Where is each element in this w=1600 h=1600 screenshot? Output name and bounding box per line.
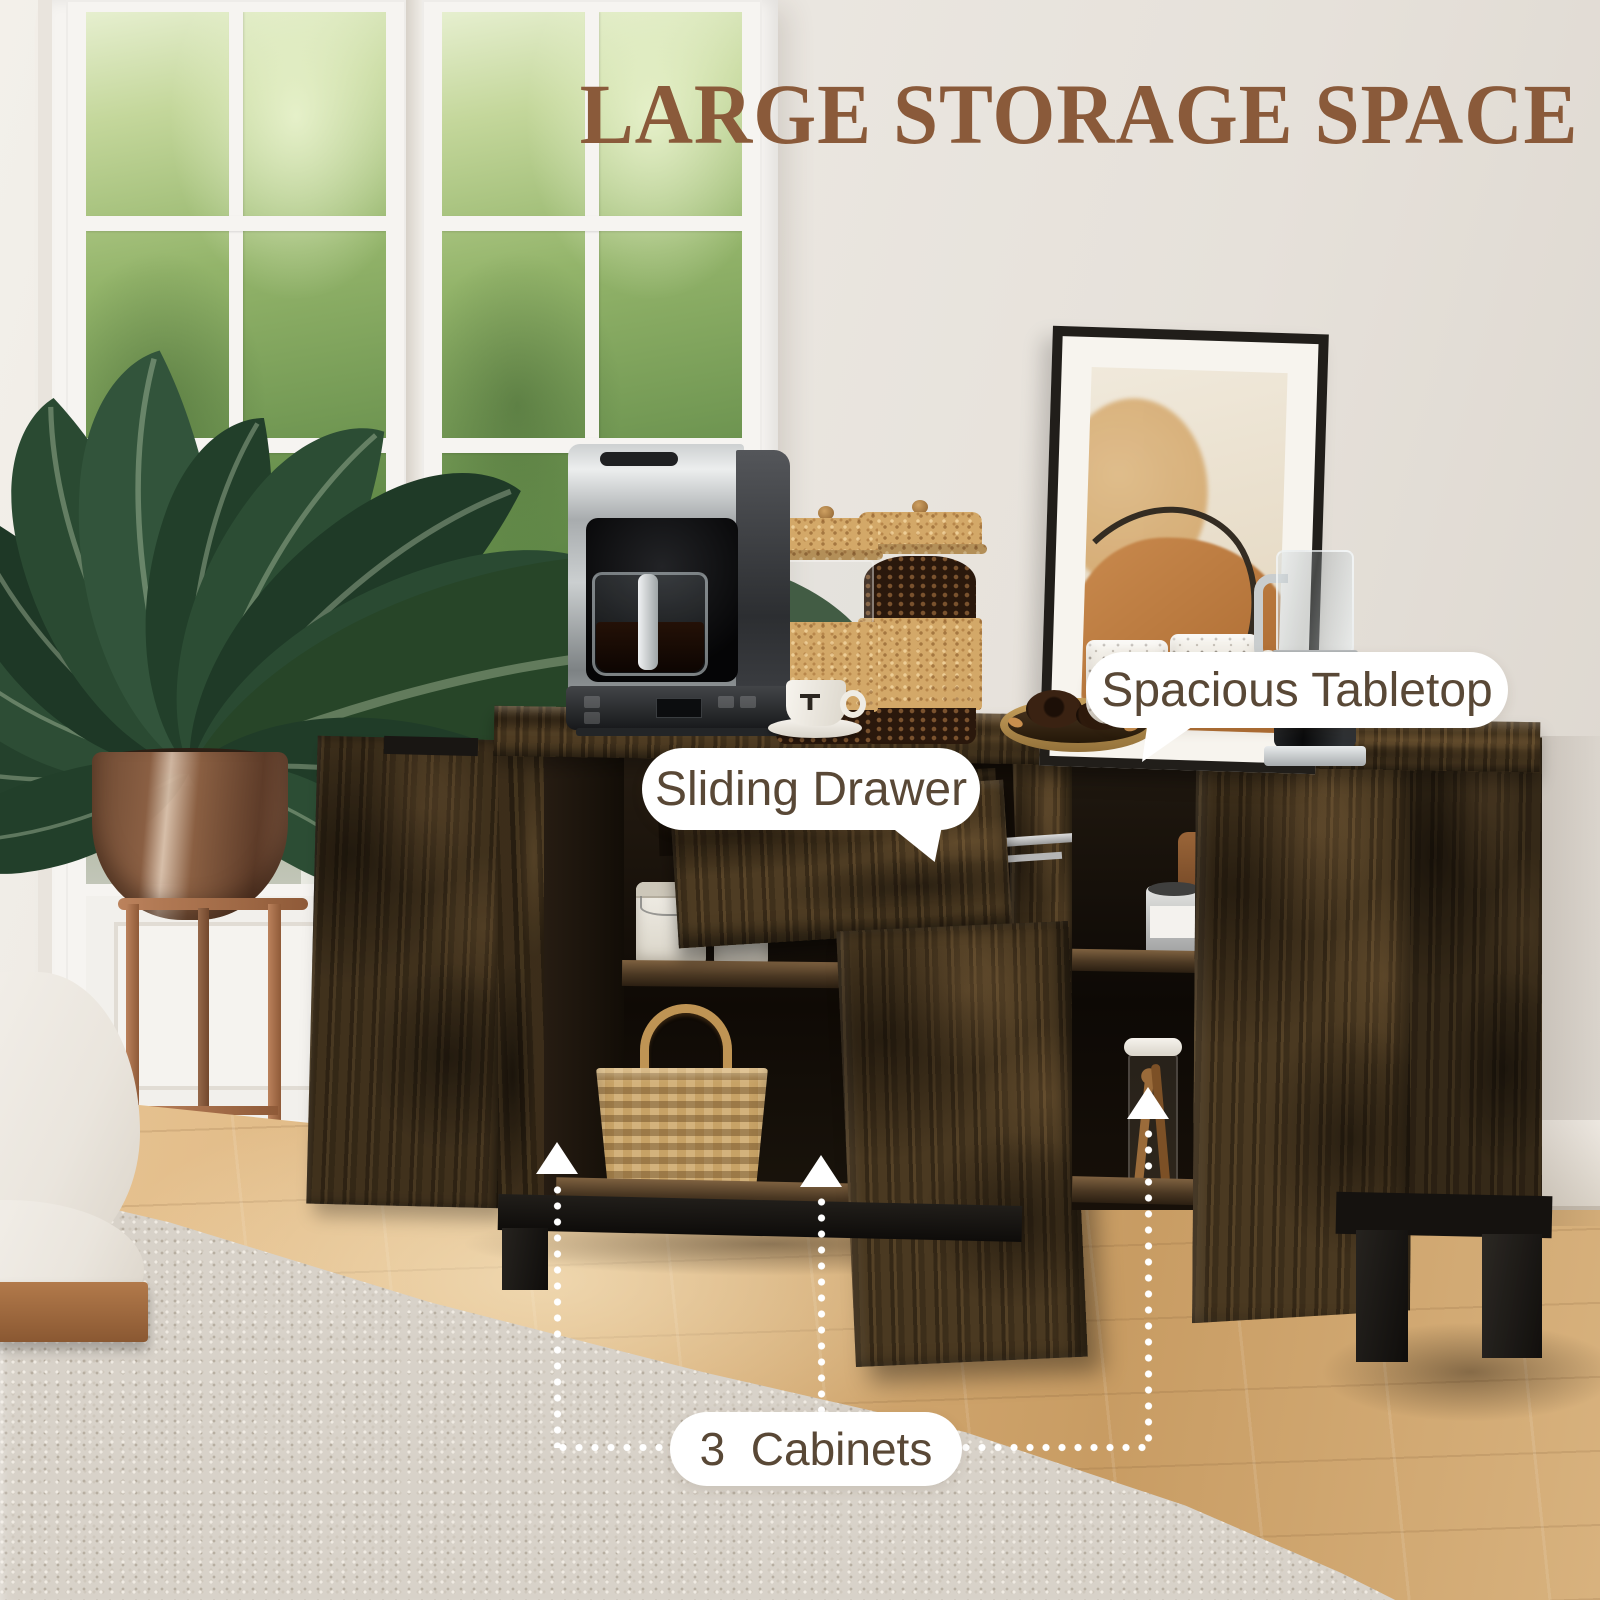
coffee-maker [566,440,794,732]
chocolate-donut [1026,690,1082,728]
coffee-maker-base [576,728,780,736]
control-button [584,696,600,708]
callout-label: 3 Cabinets [700,1422,933,1476]
dotted-connector [817,1194,826,1416]
cabinet-side-panel [1410,730,1542,1228]
dotted-connector [1144,1126,1153,1448]
up-arrow-icon [800,1155,842,1187]
carafe-handle [638,574,658,670]
coffee-beans [864,556,976,620]
frother-glass-top [1276,550,1354,654]
cup-handle [840,690,866,718]
candle-label [1150,906,1198,938]
wooden-utensil [1151,1064,1170,1182]
control-button [740,696,756,708]
door-bracket [384,736,478,756]
cabinet-left-door-open [306,736,511,1209]
coffee-maker-handle-slot [600,452,678,466]
frother-base [1264,746,1366,766]
utensil-jar [1128,1054,1178,1192]
sofa-wood-base [0,1282,148,1342]
callout-3-cabinets: 3 Cabinets [670,1412,962,1486]
up-arrow-icon [536,1142,578,1174]
clock-display [656,698,702,718]
cabinet-center-door-open [836,921,1088,1367]
callout-sliding-drawer: Sliding Drawer [642,748,980,830]
cabinet-leg [1356,1230,1408,1362]
candle-tin [1146,886,1202,958]
dotted-connector [958,1443,1150,1452]
control-button [584,712,600,724]
product-photo-scene: LARGE STORAGE SPACE Spacious Tabletop Sl… [0,0,1600,1600]
cabinet-leg [1482,1234,1542,1358]
cabinet-shelf [1072,949,1212,973]
control-button [718,696,734,708]
candle-opening [1148,882,1200,896]
coffee-maker-side-panel [736,450,790,688]
callout-label: Sliding Drawer [655,762,967,817]
callout-label: Spacious Tabletop [1101,663,1492,718]
cabinet-leg [502,1228,548,1290]
dotted-connector [555,1443,675,1452]
coffee-beans [864,708,976,744]
page-title: LARGE STORAGE SPACE [579,64,1578,164]
dotted-connector [553,1182,562,1448]
cup-graphic [800,694,820,710]
up-arrow-icon [1127,1087,1169,1119]
espresso-cup [786,680,846,726]
callout-spacious-tabletop: Spacious Tabletop [1086,652,1508,728]
